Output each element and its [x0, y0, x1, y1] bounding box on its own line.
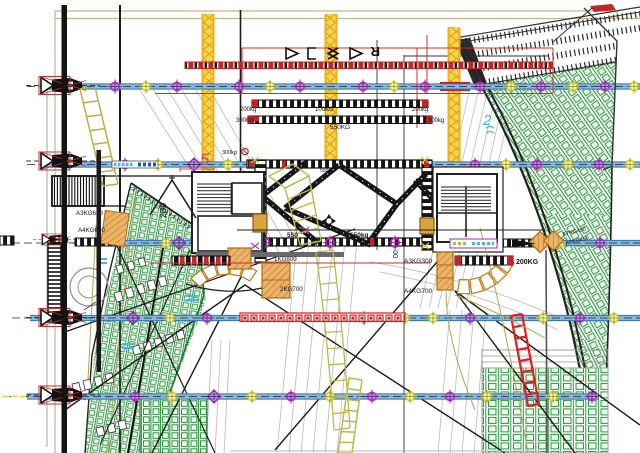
- svg-text:550g: 550g: [320, 168, 331, 174]
- svg-text:100KG: 100KG: [315, 107, 334, 113]
- svg-text:1KG800: 1KG800: [274, 256, 297, 263]
- svg-text:5: 5: [200, 150, 210, 169]
- svg-text:200kg: 200kg: [412, 107, 428, 113]
- svg-text:200KG: 200KG: [516, 259, 539, 266]
- svg-text:550kg: 550kg: [350, 232, 368, 239]
- svg-text:A3KG300: A3KG300: [404, 258, 433, 265]
- svg-text:300kg: 300kg: [222, 150, 237, 156]
- svg-text:200kg: 200kg: [240, 107, 256, 113]
- svg-text:300kg: 300kg: [428, 118, 444, 124]
- svg-text:550KG: 550KG: [330, 124, 350, 131]
- svg-text:R: R: [370, 44, 380, 59]
- svg-text:A4KG650: A4KG650: [78, 227, 105, 234]
- svg-text:A4KG700: A4KG700: [404, 288, 433, 295]
- svg-text:00: 00: [393, 250, 400, 258]
- svg-text:550: 550: [287, 232, 298, 239]
- svg-text:2Ø0: 2Ø0: [159, 202, 168, 218]
- svg-text:300KG: 300KG: [236, 118, 255, 124]
- svg-text:2KG700: 2KG700: [280, 286, 303, 293]
